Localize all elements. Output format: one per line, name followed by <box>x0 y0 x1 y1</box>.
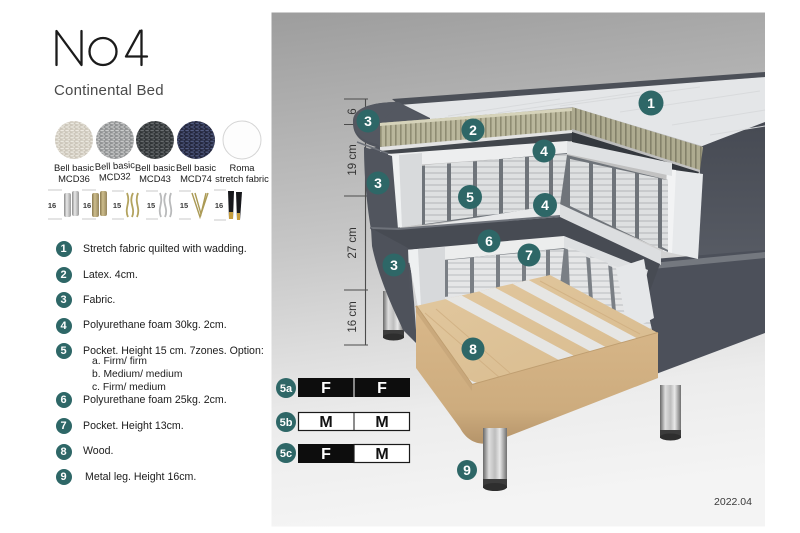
svg-text:27 cm: 27 cm <box>347 227 359 258</box>
svg-text:7: 7 <box>525 247 533 263</box>
svg-text:Bell basic: Bell basic <box>176 162 216 173</box>
svg-text:M: M <box>375 414 388 431</box>
svg-text:Bell basic: Bell basic <box>135 162 175 173</box>
svg-text:5a: 5a <box>280 383 293 395</box>
svg-text:M: M <box>319 414 332 431</box>
svg-text:4: 4 <box>540 143 548 159</box>
svg-text:2022.04: 2022.04 <box>714 496 752 508</box>
svg-text:5b: 5b <box>280 417 293 429</box>
svg-text:Bell basic: Bell basic <box>54 162 94 173</box>
svg-text:3: 3 <box>374 175 382 191</box>
svg-text:3: 3 <box>390 257 398 273</box>
svg-text:16: 16 <box>215 201 223 210</box>
svg-text:MCD32: MCD32 <box>99 170 131 183</box>
svg-text:4: 4 <box>541 197 549 213</box>
svg-text:6: 6 <box>485 233 493 249</box>
svg-text:19 cm: 19 cm <box>347 144 359 175</box>
svg-text:5: 5 <box>466 189 474 205</box>
svg-text:3: 3 <box>364 113 372 129</box>
svg-text:16 cm: 16 cm <box>347 301 359 332</box>
svg-text:16: 16 <box>83 201 91 210</box>
svg-text:15: 15 <box>113 201 121 210</box>
svg-text:15: 15 <box>147 201 155 210</box>
svg-text:2: 2 <box>469 122 477 138</box>
svg-text:F: F <box>321 446 331 463</box>
svg-text:MCD74: MCD74 <box>180 173 212 184</box>
svg-text:9: 9 <box>463 462 471 478</box>
svg-text:Roma: Roma <box>229 162 255 173</box>
svg-text:M: M <box>375 446 388 463</box>
svg-text:MCD36: MCD36 <box>58 173 90 184</box>
svg-text:15: 15 <box>180 201 188 210</box>
svg-text:1: 1 <box>647 95 655 111</box>
svg-text:F: F <box>377 380 387 397</box>
svg-text:stretch fabric: stretch fabric <box>215 173 269 184</box>
svg-text:5c: 5c <box>280 448 292 460</box>
svg-text:8: 8 <box>469 341 477 357</box>
svg-text:MCD43: MCD43 <box>139 173 171 184</box>
svg-text:F: F <box>321 380 331 397</box>
svg-text:16: 16 <box>48 201 56 210</box>
